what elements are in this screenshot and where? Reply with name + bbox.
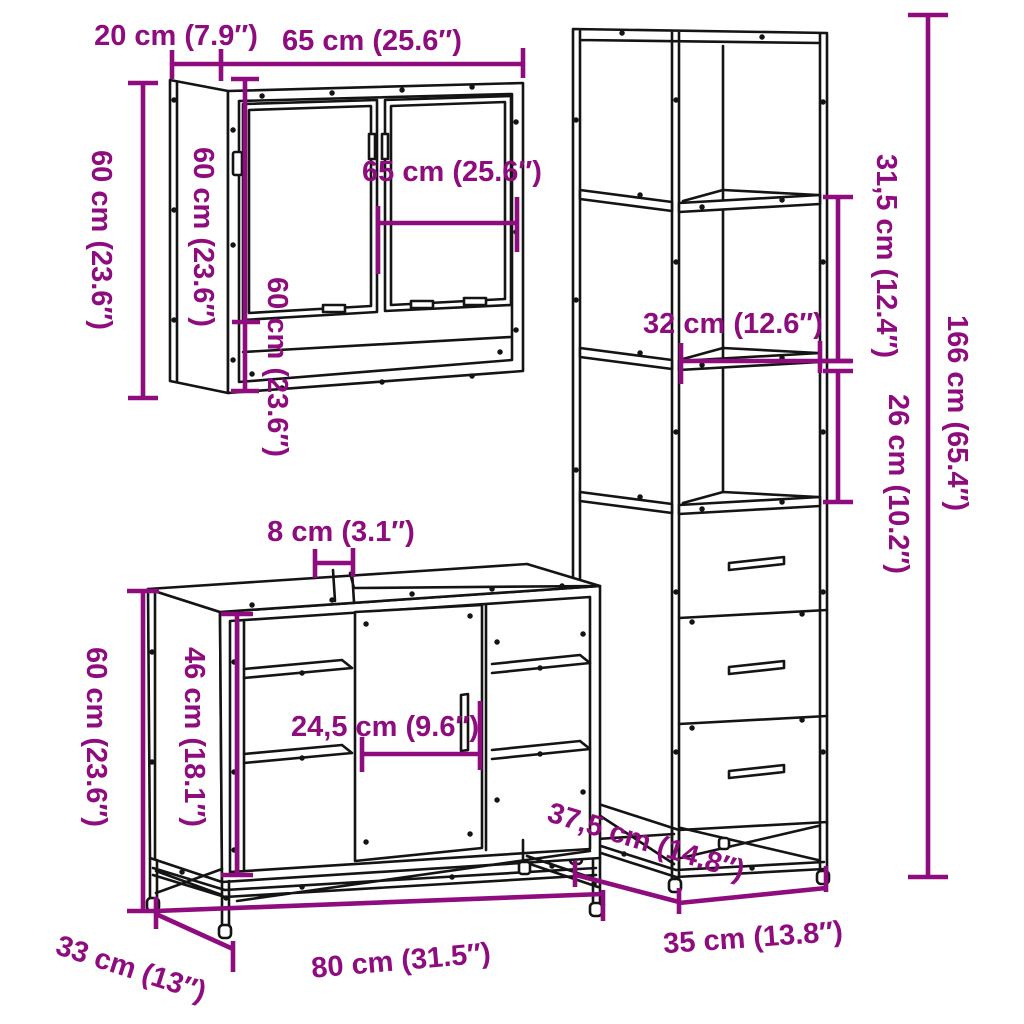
drawer-handle-2 bbox=[729, 661, 784, 674]
tall-cabinet-frame bbox=[573, 29, 827, 868]
dim-line-tall-inner-width bbox=[681, 341, 851, 384]
dim-line-mirror-height bbox=[128, 83, 158, 398]
dim-label-vanity-width: 80 cm (31.5″) bbox=[310, 937, 492, 985]
diagram-page: 20 cm (7.9″) 65 cm (25.6″) 60 cm (23.6″)… bbox=[0, 0, 1024, 1024]
dim-label-tall-upper-compartment: 31,5 cm (12.4″) bbox=[870, 154, 902, 358]
vanity-foot-front-left bbox=[219, 925, 231, 938]
mirror-door-bottom-tab-2 bbox=[411, 301, 433, 308]
dim-label-mirror-height-side: 60 cm (23.6″) bbox=[187, 147, 219, 327]
tall-cabinet-drawer-gaps bbox=[580, 610, 827, 830]
furniture-dimension-diagram: 20 cm (7.9″) 65 cm (25.6″) 60 cm (23.6″)… bbox=[0, 0, 1024, 1024]
dim-label-mirror-height: 60 cm (23.6″) bbox=[85, 150, 117, 330]
dim-label-mirror-inner-width: 65 cm (25.6″) bbox=[362, 156, 542, 188]
drawer-handle-1 bbox=[729, 557, 784, 570]
tall-cabinet-screw-dots bbox=[576, 33, 823, 868]
mirror-door-right bbox=[385, 96, 511, 311]
dim-label-tall-height: 166 cm (65.4″) bbox=[941, 315, 973, 511]
mirror-cabinet-drawing bbox=[170, 80, 523, 393]
dim-label-vanity-gap: 8 cm (3.1″) bbox=[267, 516, 415, 548]
drawer-handle-3 bbox=[729, 765, 784, 778]
dim-label-tall-width: 35 cm (13.8″) bbox=[662, 916, 844, 960]
dim-label-mirror-width: 65 cm (25.6″) bbox=[282, 25, 462, 57]
dim-label-mirror-depth: 20 cm (7.9″) bbox=[94, 20, 258, 52]
mirror-door-hinge bbox=[233, 152, 242, 175]
dim-label-tall-lower-compartment: 26 cm (10.2″) bbox=[882, 394, 914, 574]
dim-label-vanity-height: 60 cm (23.6″) bbox=[80, 647, 112, 827]
dim-label-vanity-depth: 33 cm (13″) bbox=[52, 930, 210, 1009]
tall-cabinet-drawing bbox=[570, 29, 829, 892]
dim-label-tall-inner-width: 32 cm (12.6″) bbox=[643, 308, 823, 340]
dim-line-tall-compartments bbox=[820, 197, 853, 502]
dim-label-mirror-height-front: 60 cm (23.6″) bbox=[261, 277, 293, 457]
mirror-door-bottom-tab-1 bbox=[323, 305, 345, 312]
vanity-foot-back-right bbox=[519, 862, 530, 874]
vanity-foot-front-right bbox=[590, 903, 602, 916]
mirror-door-bottom-tab-3 bbox=[464, 298, 486, 305]
vanity-cabinet-drawing bbox=[147, 564, 602, 938]
dim-label-vanity-inner-height: 46 cm (18.1″) bbox=[178, 647, 210, 827]
dim-label-vanity-inner-width: 24,5 cm (9.6″) bbox=[291, 711, 479, 743]
